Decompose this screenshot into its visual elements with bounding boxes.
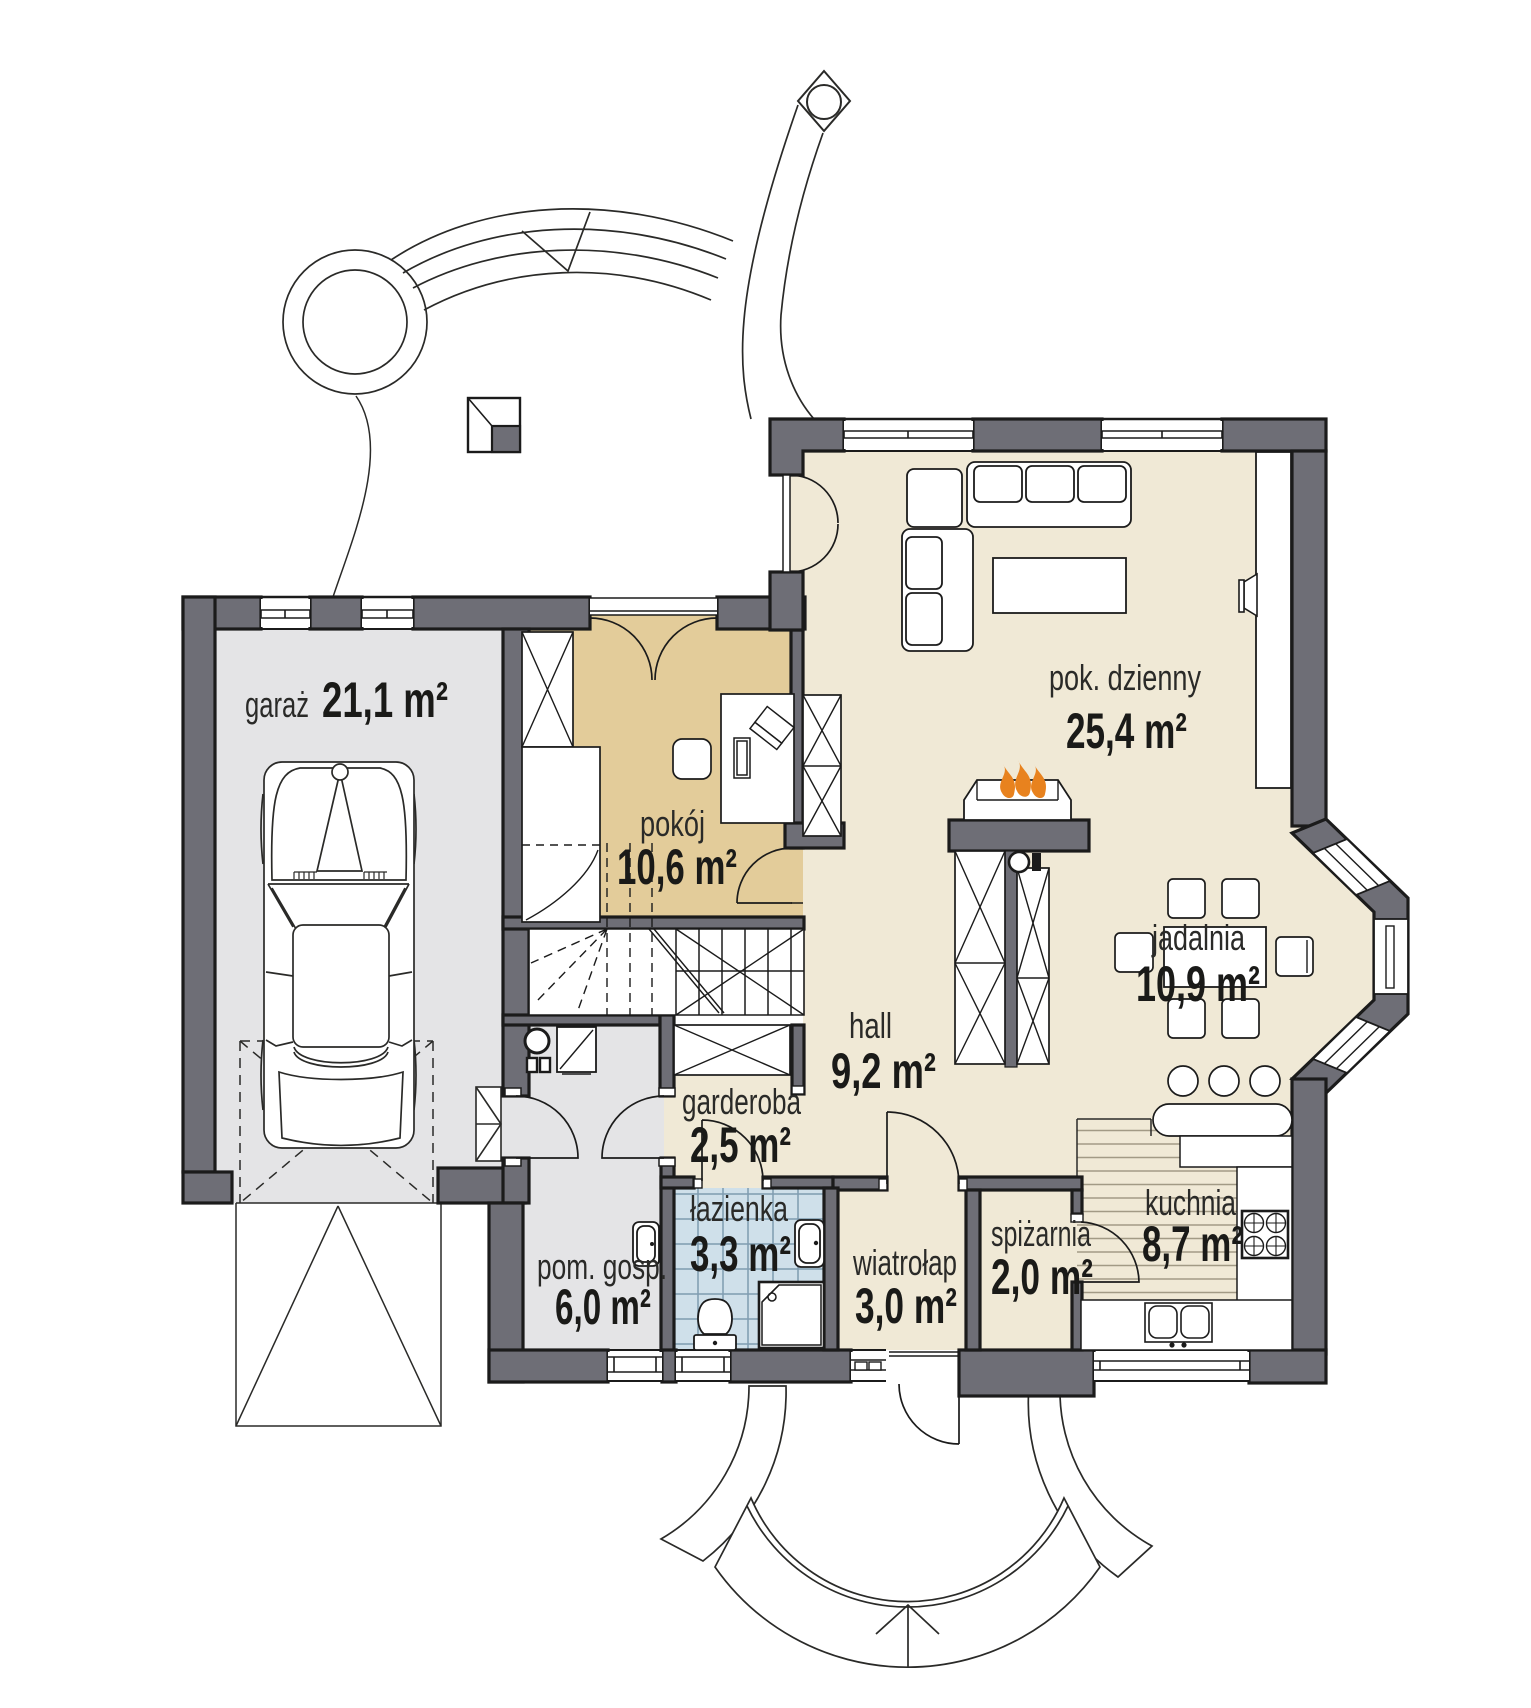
svg-text:6,0 m²: 6,0 m² (555, 1279, 651, 1335)
svg-text:wiatrołap: wiatrołap (852, 1242, 957, 1283)
svg-text:jadalnia: jadalnia (1151, 917, 1245, 958)
svg-text:3,0 m²: 3,0 m² (855, 1278, 957, 1334)
svg-text:8,7 m²: 8,7 m² (1142, 1216, 1243, 1272)
svg-text:21,1 m²: 21,1 m² (322, 672, 448, 728)
svg-text:pokój: pokój (640, 803, 705, 844)
svg-text:garaż: garaż (245, 684, 309, 725)
svg-text:25,4 m²: 25,4 m² (1066, 703, 1187, 759)
svg-text:10,9 m²: 10,9 m² (1136, 956, 1260, 1012)
svg-text:pok. dzienny: pok. dzienny (1049, 657, 1201, 698)
svg-text:spiżarnia: spiżarnia (991, 1213, 1092, 1254)
svg-text:garderoba: garderoba (682, 1081, 802, 1122)
svg-text:2,0 m²: 2,0 m² (991, 1249, 1093, 1305)
svg-text:łazienka: łazienka (690, 1188, 789, 1229)
svg-text:3,3 m²: 3,3 m² (690, 1226, 791, 1282)
svg-text:hall: hall (849, 1005, 892, 1046)
svg-text:2,5 m²: 2,5 m² (690, 1117, 791, 1173)
svg-text:10,6 m²: 10,6 m² (617, 839, 737, 895)
svg-text:9,2 m²: 9,2 m² (831, 1043, 936, 1099)
